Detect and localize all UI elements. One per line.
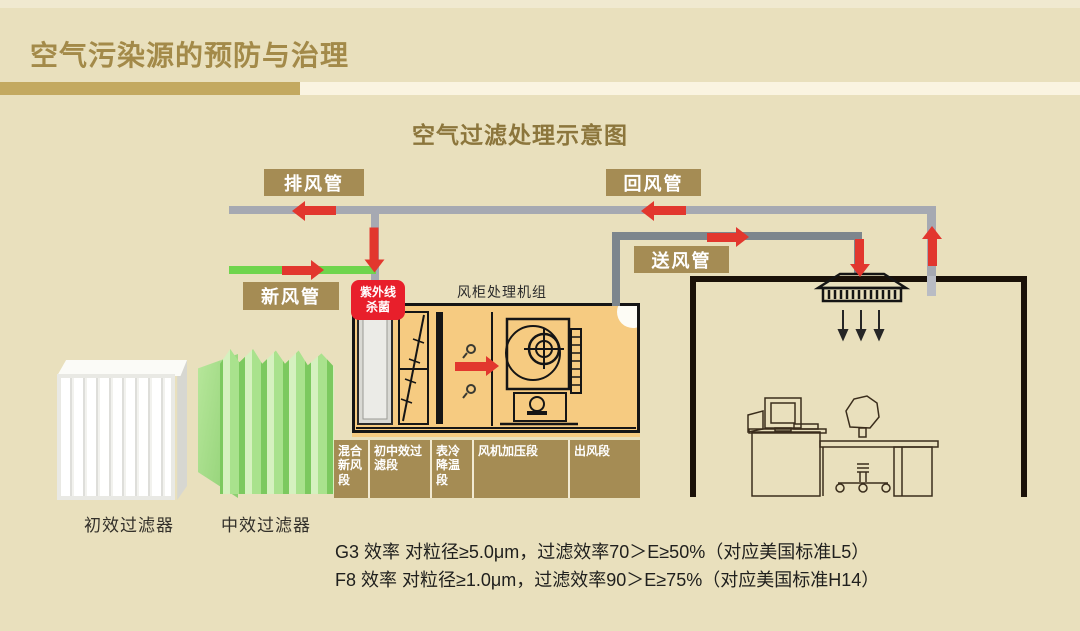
workstation-line-art [742,386,954,500]
ahu-section-bar: 混合新风段 初中效过滤段 表冷降温段 风机加压段 出风段 [334,440,640,498]
room-right-wall [1021,276,1027,497]
diagram-title: 空气过滤处理示意图 [400,116,640,150]
medium-filter-label: 中效过滤器 [221,511,311,536]
return-duct-vertical-in-room [927,276,936,296]
flow-arrow-exhaust-left-icon [292,201,336,221]
label-supply-duct-text: 送风管 [652,247,712,273]
primary-filter-pleats [57,374,175,500]
section-outlet: 出风段 [570,440,640,498]
uv-line1: 紫外线 [360,285,396,300]
flow-arrow-supply-right-icon [707,227,749,247]
flow-arrow-fresh-right-icon [282,260,324,280]
note-g3: G3 效率 对粒径≥5.0μm，过滤效率70＞E≥50%（对应美国标准L5） [335,538,935,564]
section-mixing: 混合新风段 [334,440,370,498]
flow-arrow-supply-down-icon [850,239,870,277]
supply-duct-vertical-left [612,232,620,306]
primary-filter-image [57,360,187,500]
label-return-duct: 回风管 [606,169,701,196]
flow-arrow-return-left-icon [641,201,686,221]
primary-filter-label: 初效过滤器 [84,511,174,536]
label-exhaust-duct: 排风管 [264,169,364,196]
uv-line2: 杀菌 [366,300,390,315]
label-return-duct-text: 回风管 [624,170,684,196]
primary-filter-side [173,360,187,500]
note-f8: F8 效率 对粒径≥1.0μm，过滤效率90＞E≥75%（对应美国标准H14） [335,566,935,592]
section-fan: 风机加压段 [474,440,570,498]
room-left-wall [690,276,696,497]
label-fresh-duct: 新风管 [243,282,339,310]
uv-sterilization-badge: 紫外线 杀菌 [351,280,405,320]
flow-arrow-room-up-icon [922,226,942,266]
top-strip [0,0,1080,8]
medium-filter-pockets [220,346,334,494]
page-title: 空气污染源的预防与治理 [30,34,349,74]
section-filtration: 初中效过滤段 [370,440,432,498]
slide-air-pollution-treatment: 空气污染源的预防与治理 空气过滤处理示意图 排风管 回风管 送风管 新风管 紫外… [0,0,1080,631]
label-fresh-duct-text: 新风管 [261,283,321,309]
label-exhaust-duct-text: 排风管 [284,170,344,196]
medium-filter-image [198,346,334,498]
title-underline-dark [0,82,300,95]
title-underline-light [300,82,1080,95]
flow-arrow-ahu-internal-icon [455,356,499,376]
section-cooling: 表冷降温段 [432,440,474,498]
ahu-title: 风柜处理机组 [457,282,547,302]
flow-arrow-mix-down-icon [365,228,385,273]
label-supply-duct: 送风管 [634,246,729,273]
